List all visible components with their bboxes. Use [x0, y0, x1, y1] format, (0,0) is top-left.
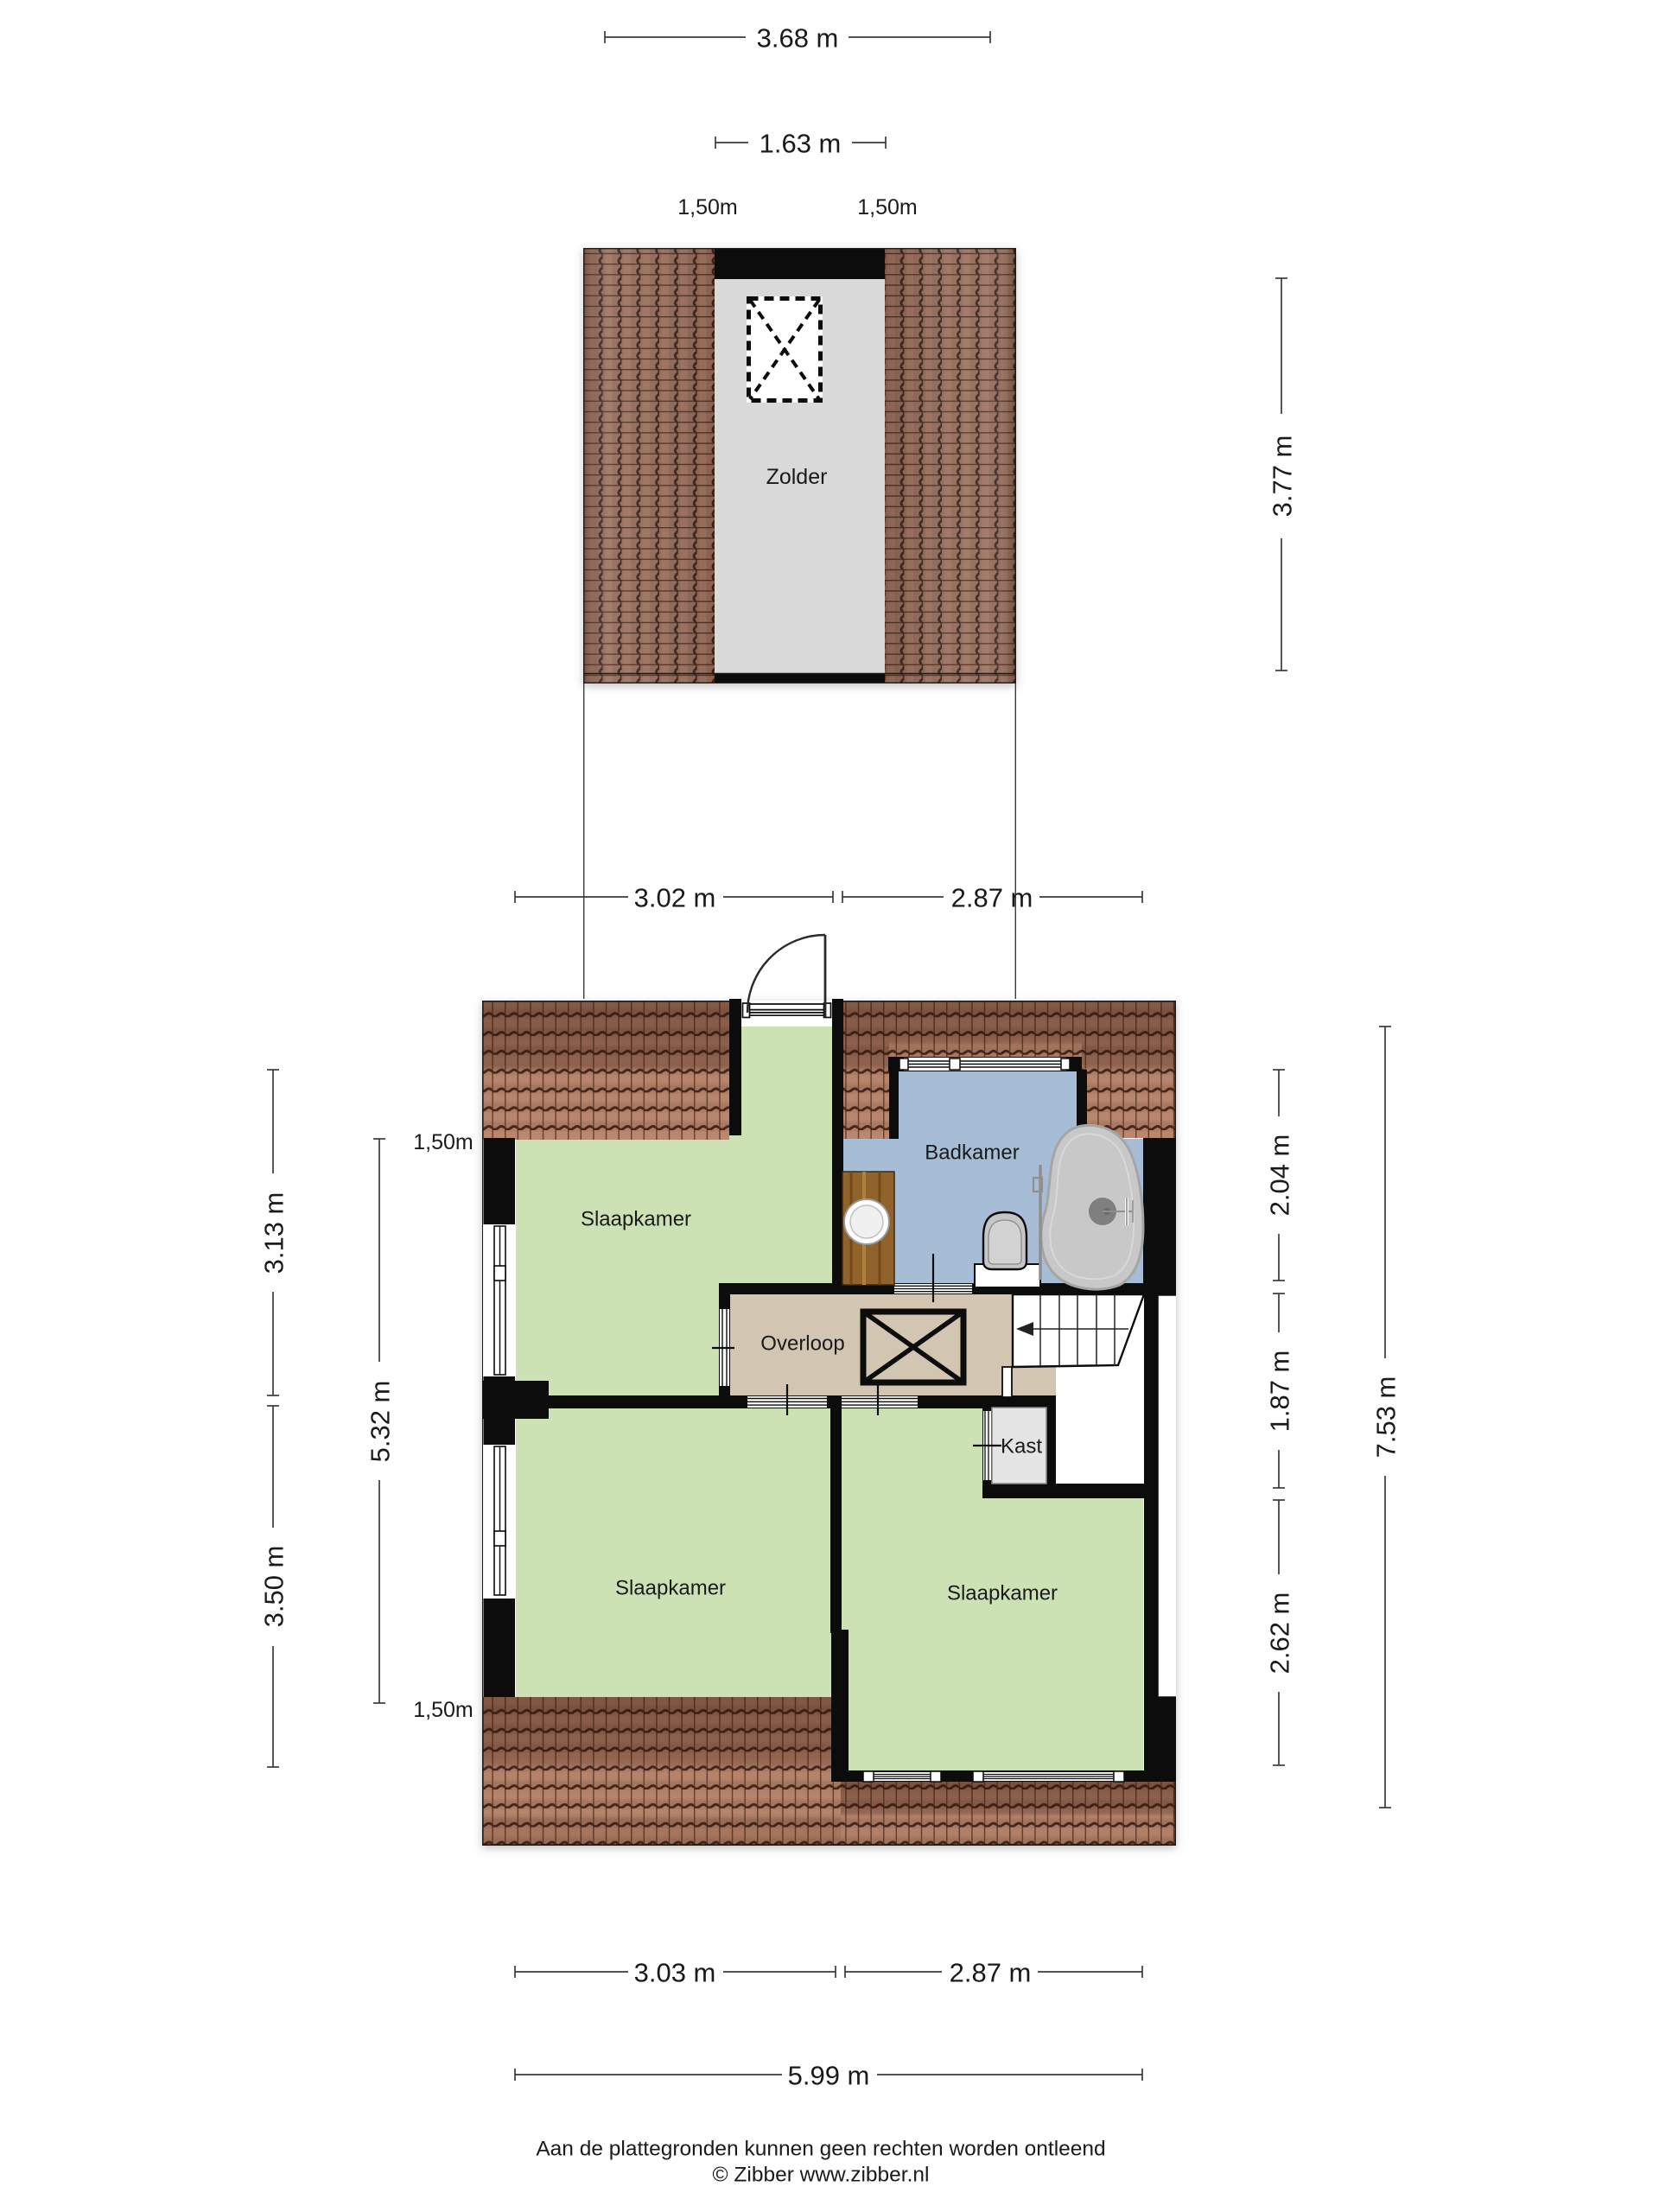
svg-text:Slaapkamer: Slaapkamer: [615, 1577, 726, 1600]
svg-text:3.02 m: 3.02 m: [634, 883, 716, 913]
svg-text:Aan de plattegronden kunnen ge: Aan de plattegronden kunnen geen rechten…: [536, 2138, 1105, 2161]
svg-text:2.87 m: 2.87 m: [951, 883, 1033, 913]
svg-text:Slaapkamer: Slaapkamer: [947, 1582, 1058, 1605]
svg-text:1.63 m: 1.63 m: [760, 129, 842, 159]
svg-text:5.32 m: 5.32 m: [365, 1381, 396, 1463]
svg-text:1,50m: 1,50m: [413, 1698, 473, 1722]
svg-text:Badkamer: Badkamer: [925, 1141, 1019, 1165]
svg-text:2.62 m: 2.62 m: [1265, 1592, 1295, 1675]
svg-text:1,50m: 1,50m: [857, 195, 917, 219]
svg-text:5.99 m: 5.99 m: [788, 2061, 870, 2091]
svg-text:Kast: Kast: [1001, 1435, 1042, 1459]
svg-text:Slaapkamer: Slaapkamer: [581, 1208, 691, 1231]
svg-text:7.53 m: 7.53 m: [1371, 1376, 1402, 1459]
svg-text:3.77 m: 3.77 m: [1268, 435, 1298, 518]
svg-text:Zolder: Zolder: [766, 465, 828, 489]
svg-text:3.03 m: 3.03 m: [634, 1958, 716, 1988]
svg-text:1,50m: 1,50m: [413, 1130, 473, 1154]
svg-text:3.68 m: 3.68 m: [757, 23, 839, 54]
svg-text:2.87 m: 2.87 m: [950, 1958, 1032, 1988]
svg-text:3.13 m: 3.13 m: [259, 1192, 289, 1274]
svg-text:1.87 m: 1.87 m: [1265, 1351, 1295, 1433]
svg-text:Overloop: Overloop: [760, 1332, 844, 1356]
svg-text:3.50 m: 3.50 m: [259, 1546, 289, 1628]
svg-text:© Zibber www.zibber.nl: © Zibber www.zibber.nl: [713, 2164, 930, 2187]
svg-text:2.04 m: 2.04 m: [1265, 1135, 1295, 1217]
svg-text:1,50m: 1,50m: [677, 195, 737, 219]
